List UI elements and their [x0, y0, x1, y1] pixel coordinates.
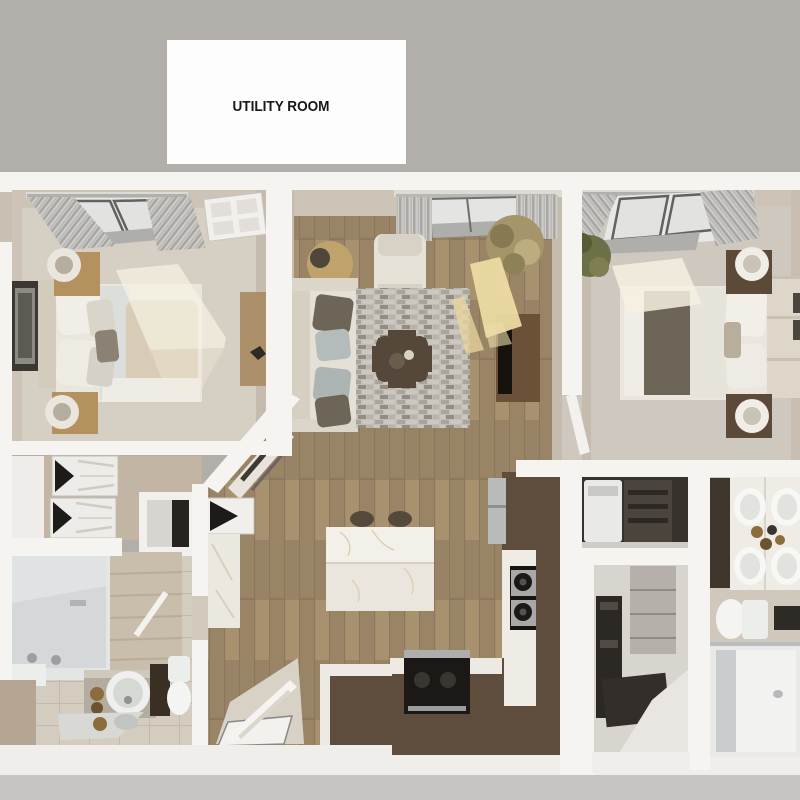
svg-text:UTILITY ROOM: UTILITY ROOM — [233, 98, 330, 115]
